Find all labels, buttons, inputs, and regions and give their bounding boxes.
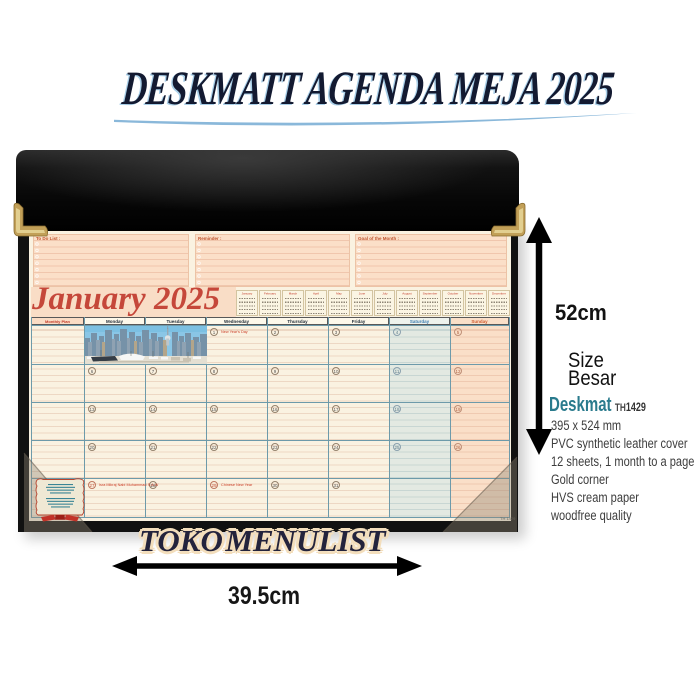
svg-text:TH 1429: TH 1429 xyxy=(500,516,516,521)
